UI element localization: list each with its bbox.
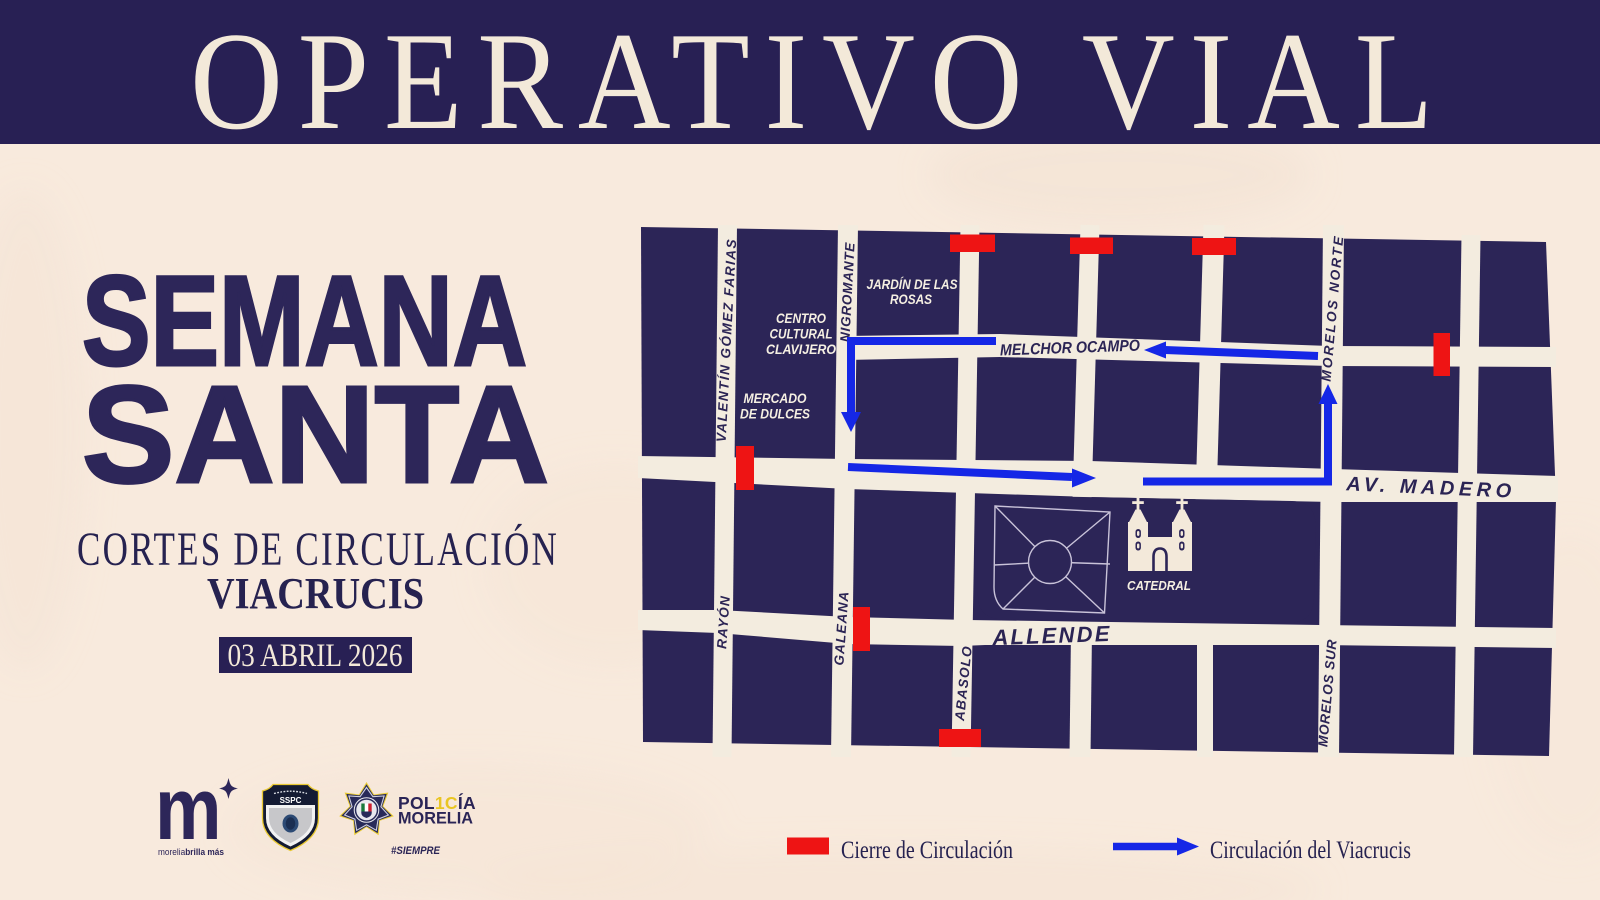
svg-text:OPERATIVO VIAL: OPERATIVO VIAL (190, 4, 1448, 159)
svg-text:DE DULCES: DE DULCES (740, 407, 810, 422)
svg-text:MORELIA: MORELIA (398, 809, 473, 828)
svg-text:CATEDRAL: CATEDRAL (1127, 578, 1191, 593)
svg-text:Circulación del Viacrucis: Circulación del Viacrucis (1210, 837, 1411, 864)
svg-text:SSPC: SSPC (280, 796, 302, 805)
svg-text:CLAVIJERO: CLAVIJERO (766, 342, 836, 357)
svg-text:m: m (155, 760, 222, 858)
svg-text:ALLENDE: ALLENDE (991, 621, 1112, 650)
svg-text:JARDÍN DE LAS: JARDÍN DE LAS (867, 277, 958, 292)
svg-text:ROSAS: ROSAS (890, 292, 932, 307)
svg-text:CENTRO: CENTRO (776, 311, 826, 326)
svg-text:#SIEMPRE: #SIEMPRE (391, 845, 441, 857)
svg-text:VIACRUCIS: VIACRUCIS (207, 569, 424, 618)
svg-text:SANTA: SANTA (82, 358, 549, 512)
svg-text:moreliabrilla más: moreliabrilla más (158, 847, 224, 857)
svg-text:Cierre de Circulación: Cierre de Circulación (841, 837, 1013, 864)
svg-text:CULTURAL: CULTURAL (770, 327, 833, 342)
svg-text:CORTES DE CIRCULACIÓN: CORTES DE CIRCULACIÓN (77, 522, 559, 576)
svg-text:03 ABRIL 2026: 03 ABRIL 2026 (228, 638, 403, 674)
svg-text:MERCADO: MERCADO (744, 391, 807, 406)
